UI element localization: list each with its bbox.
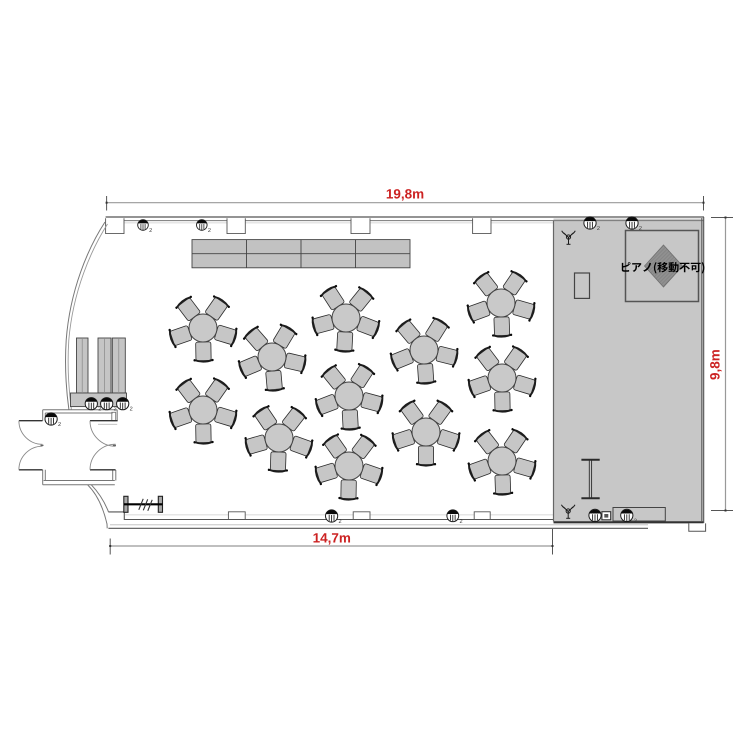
svg-text:9,8m: 9,8m — [708, 349, 723, 380]
svg-text:2: 2 — [58, 422, 61, 428]
svg-text:2: 2 — [130, 407, 133, 413]
svg-text:2: 2 — [339, 519, 342, 525]
svg-text:2: 2 — [98, 407, 101, 413]
svg-text:2: 2 — [114, 407, 117, 413]
svg-text:2: 2 — [208, 228, 211, 234]
svg-text:14,7m: 14,7m — [313, 530, 351, 545]
svg-text:19,8m: 19,8m — [386, 186, 424, 201]
svg-text:2: 2 — [460, 519, 463, 525]
svg-text:2: 2 — [634, 518, 637, 524]
svg-text:2: 2 — [149, 228, 152, 234]
svg-text:2: 2 — [639, 226, 642, 232]
svg-text:2: 2 — [597, 226, 600, 232]
